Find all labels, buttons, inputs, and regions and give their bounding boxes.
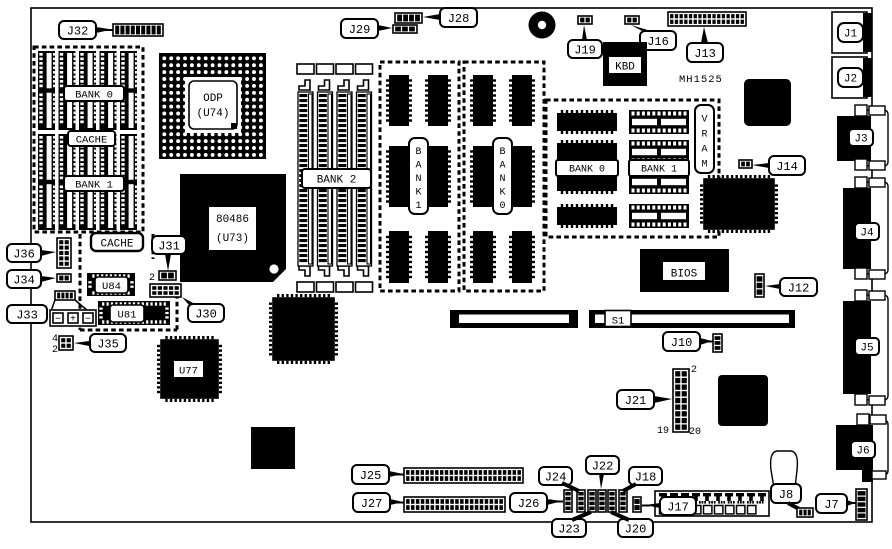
svg-text:2: 2 (691, 365, 697, 376)
svg-text:N: N (415, 174, 421, 185)
svg-text:J1: J1 (844, 28, 858, 40)
svg-text:J28: J28 (448, 12, 470, 26)
svg-text:J8: J8 (779, 488, 793, 502)
svg-text:4: 4 (52, 334, 58, 345)
svg-text:BIOS: BIOS (671, 269, 698, 281)
svg-text:BANK 2: BANK 2 (317, 174, 357, 186)
svg-text:80486: 80486 (216, 214, 249, 226)
svg-text:N: N (499, 174, 505, 185)
svg-text:J33: J33 (16, 308, 38, 322)
svg-text:J21: J21 (625, 394, 647, 408)
svg-text:BANK 0: BANK 0 (569, 165, 605, 176)
svg-text:J5: J5 (860, 342, 873, 354)
svg-text:U84: U84 (102, 281, 121, 293)
svg-text:2: 2 (149, 273, 155, 284)
svg-text:BANK 0: BANK 0 (75, 89, 113, 101)
svg-text:0: 0 (499, 201, 505, 212)
svg-text:B: B (499, 147, 505, 158)
svg-text:ODP: ODP (203, 93, 223, 105)
svg-text:2: 2 (52, 345, 58, 356)
svg-text:U77: U77 (179, 366, 198, 378)
svg-text:B: B (415, 147, 421, 158)
svg-text:J30: J30 (195, 307, 217, 321)
svg-text:J20: J20 (625, 522, 647, 536)
svg-text:J19: J19 (574, 43, 596, 57)
svg-text:J23: J23 (558, 522, 580, 536)
svg-text:J6: J6 (856, 445, 869, 457)
svg-text:J31: J31 (158, 239, 180, 253)
svg-text:J26: J26 (518, 497, 540, 511)
svg-text:BANK 1: BANK 1 (641, 165, 677, 176)
svg-text:J3: J3 (854, 133, 867, 145)
svg-text:U81: U81 (118, 309, 137, 321)
svg-text:19: 19 (657, 426, 669, 437)
svg-text:J17: J17 (667, 500, 689, 514)
svg-text:J34: J34 (13, 273, 35, 287)
svg-text:CACHE: CACHE (76, 134, 108, 146)
svg-text:R: R (701, 130, 707, 141)
svg-text:V: V (701, 115, 707, 126)
svg-text:J10: J10 (671, 336, 693, 350)
svg-text:A: A (415, 160, 421, 171)
svg-text:(U73): (U73) (216, 233, 249, 245)
svg-text:J25: J25 (360, 469, 382, 483)
svg-text:J12: J12 (788, 281, 810, 295)
svg-text:A: A (701, 145, 707, 156)
svg-text:J7: J7 (824, 498, 838, 512)
svg-text:J36: J36 (13, 247, 35, 261)
svg-text:20: 20 (689, 427, 701, 438)
svg-text:MH1525: MH1525 (679, 74, 723, 86)
svg-text:BANK 1: BANK 1 (75, 179, 113, 191)
svg-text:+: + (70, 315, 76, 326)
svg-text:J35: J35 (97, 337, 119, 351)
svg-text:J16: J16 (647, 35, 669, 49)
svg-text:J32: J32 (67, 24, 89, 38)
svg-text:S1: S1 (612, 316, 625, 328)
svg-text:CACHE: CACHE (100, 239, 133, 251)
svg-text:K: K (415, 188, 421, 199)
svg-text:J29: J29 (349, 23, 371, 37)
svg-text:1: 1 (415, 201, 421, 212)
svg-text:A: A (499, 160, 505, 171)
svg-text:(U74): (U74) (196, 108, 229, 120)
svg-text:KBD: KBD (615, 62, 635, 74)
svg-text:J2: J2 (844, 73, 857, 85)
svg-text:J27: J27 (361, 497, 383, 511)
svg-text:M: M (701, 160, 707, 171)
svg-text:−: − (55, 315, 61, 326)
svg-text:J22: J22 (592, 459, 614, 473)
svg-text:K: K (499, 188, 505, 199)
svg-text:−: − (85, 315, 91, 326)
svg-text:J13: J13 (694, 47, 716, 61)
svg-text:J14: J14 (776, 160, 798, 174)
svg-text:J4: J4 (860, 227, 874, 239)
svg-text:J18: J18 (635, 470, 657, 484)
